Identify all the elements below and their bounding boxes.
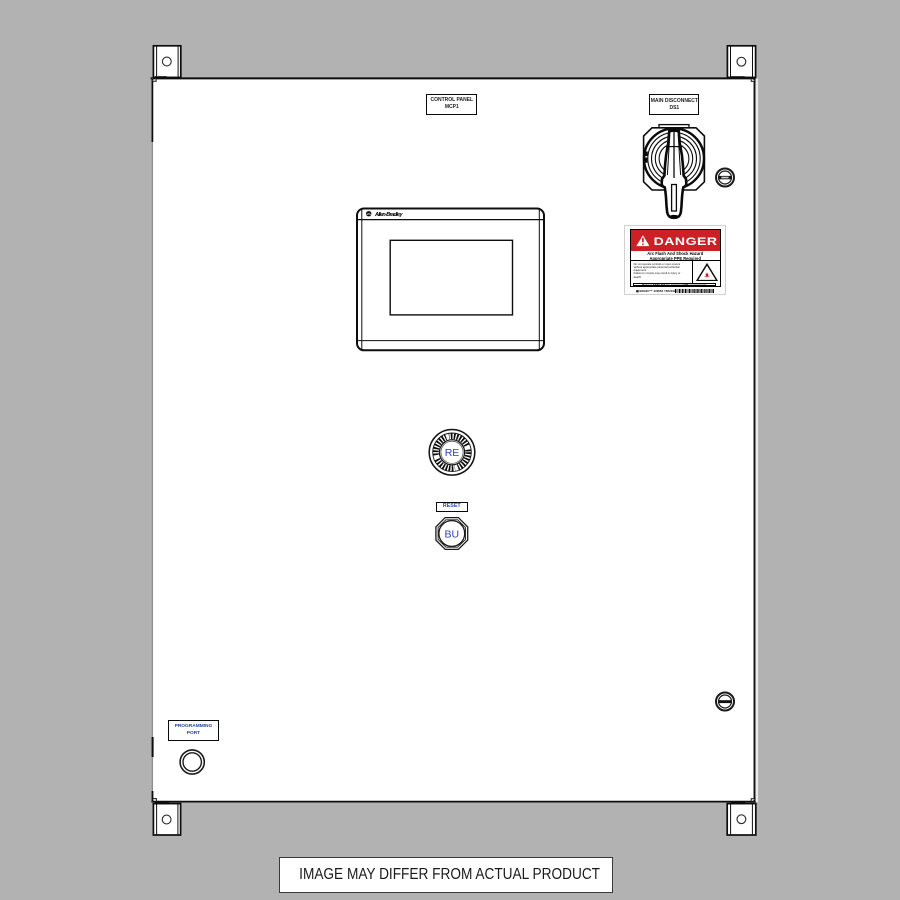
svg-text:Allen-Bradley: Allen-Bradley bbox=[374, 212, 403, 218]
svg-text:BU: BU bbox=[445, 528, 460, 540]
svg-text:RE: RE bbox=[445, 447, 460, 459]
